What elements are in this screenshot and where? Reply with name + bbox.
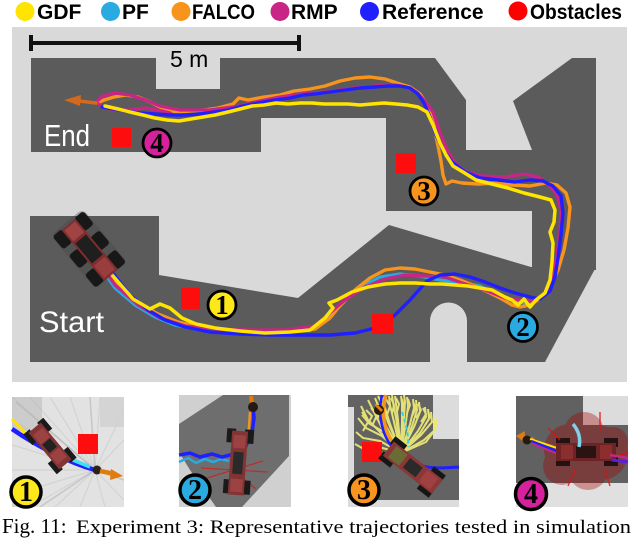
svg-text:RMP: RMP <box>291 1 338 24</box>
svg-text:4: 4 <box>524 479 538 510</box>
svg-text:Start: Start <box>39 306 105 339</box>
svg-text:5 m: 5 m <box>170 46 208 72</box>
svg-text:Obstacles: Obstacles <box>530 1 622 24</box>
svg-text:1: 1 <box>19 477 33 508</box>
svg-text:3: 3 <box>357 475 371 506</box>
svg-text:Fig. 11:: Fig. 11: <box>2 514 67 538</box>
svg-text:2: 2 <box>188 475 202 506</box>
svg-text:PF: PF <box>122 1 149 24</box>
svg-text:2: 2 <box>516 312 530 342</box>
svg-text:Reference: Reference <box>382 1 484 24</box>
svg-text:Experiment 3: Representative t: Experiment 3: Representative trajectorie… <box>76 517 632 538</box>
svg-text:3: 3 <box>417 176 431 206</box>
svg-text:GDF: GDF <box>37 1 82 24</box>
svg-text:1: 1 <box>215 290 229 320</box>
svg-text:FALCO: FALCO <box>192 1 255 24</box>
svg-text:4: 4 <box>150 128 164 158</box>
svg-text:End: End <box>44 118 90 153</box>
